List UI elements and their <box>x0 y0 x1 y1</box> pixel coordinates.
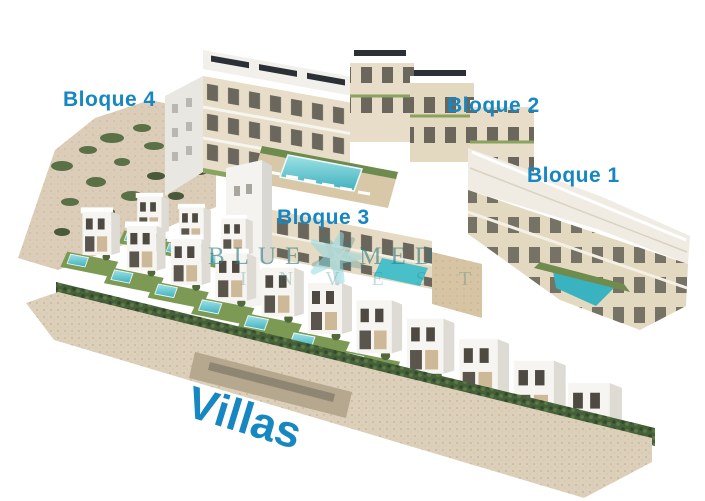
watermark-blue-text: BLUE <box>208 243 309 271</box>
label-bloque-4: Bloque 4 <box>63 88 156 112</box>
rendering-canvas: Bloque 4 Bloque 2 Bloque 1 Bloque 3 Vill… <box>0 0 705 501</box>
label-bloque-3: Bloque 3 <box>277 206 370 230</box>
watermark-med-text: MED <box>359 243 442 271</box>
watermark-invest-text: INVEST <box>240 268 503 291</box>
label-bloque-2: Bloque 2 <box>447 94 540 118</box>
label-bloque-1: Bloque 1 <box>527 164 620 188</box>
